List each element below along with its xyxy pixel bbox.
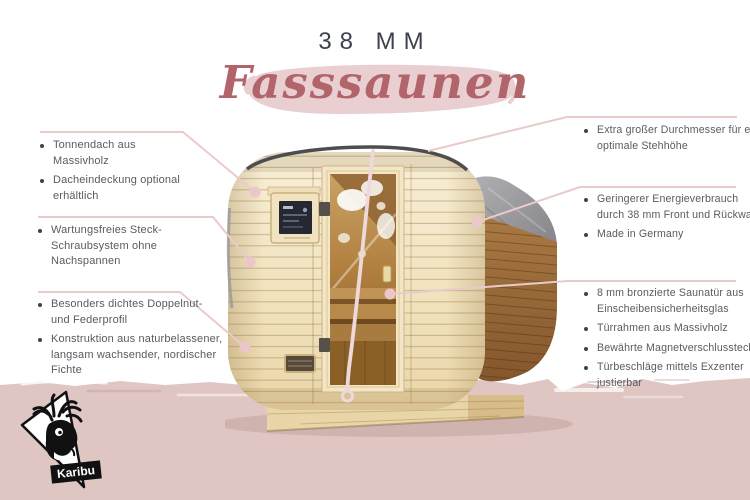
bullet-text: Tonnendach ausMassivholz xyxy=(53,138,136,169)
door-hinge-top xyxy=(319,202,330,216)
bullet-item: Bewährte Magnetverschlusstechnik xyxy=(584,341,750,357)
annotation-assembly: Wartungsfreies Steck-Schraubsystem ohneN… xyxy=(38,223,162,274)
bullet-text: Wartungsfreies Steck-Schraubsystem ohneN… xyxy=(51,223,162,270)
bullet-dot-icon xyxy=(584,366,588,370)
bullet-item: Besonders dichtes Doppelnut-und Federpro… xyxy=(38,297,222,328)
bullet-dot-icon xyxy=(40,144,44,148)
bullet-dot-icon xyxy=(584,292,588,296)
bullet-text: Geringerer Energieverbrauchdurch 38 mm F… xyxy=(597,192,750,223)
vent-grille xyxy=(285,355,315,372)
annotation-profile: Besonders dichtes Doppelnut-und Federpro… xyxy=(38,297,222,383)
bullet-text: Extra großer Durchmesser für eineoptimal… xyxy=(597,123,750,154)
bullet-item: Wartungsfreies Steck-Schraubsystem ohneN… xyxy=(38,223,162,270)
bullet-dot-icon xyxy=(584,327,588,331)
bullet-text: 8 mm bronzierte Saunatür ausEinscheibens… xyxy=(597,286,744,317)
bullet-dot-icon xyxy=(584,233,588,237)
annotation-roof: Tonnendach ausMassivholzDacheindeckung o… xyxy=(40,138,180,208)
bullet-item: Konstruktion aus naturbelassener,langsam… xyxy=(38,332,222,379)
bullet-dot-icon xyxy=(584,129,588,133)
sauna-door xyxy=(319,166,404,392)
bullet-dot-icon xyxy=(584,198,588,202)
door-hinge-bottom xyxy=(319,338,330,352)
bullet-item: Türrahmen aus Massivholz xyxy=(584,321,750,337)
annotation-door: 8 mm bronzierte Saunatür ausEinscheibens… xyxy=(584,286,750,395)
bullet-dot-icon xyxy=(38,303,42,307)
bullet-item: Geringerer Energieverbrauchdurch 38 mm F… xyxy=(584,192,750,223)
bullet-text: Türrahmen aus Massivholz xyxy=(597,321,728,337)
thickness-title: 38 MM xyxy=(0,28,750,56)
annotation-energy: Geringerer Energieverbrauchdurch 38 mm F… xyxy=(584,192,750,247)
bullet-text: Bewährte Magnetverschlusstechnik xyxy=(597,341,750,357)
bullet-item: Dacheindeckung optionalerhältlich xyxy=(40,173,180,204)
annotation-diameter: Extra großer Durchmesser für eineoptimal… xyxy=(584,123,750,158)
karibu-logo: Karibu xyxy=(18,388,118,496)
bullet-dot-icon xyxy=(584,347,588,351)
bullet-dot-icon xyxy=(40,179,44,183)
bullet-text: Besonders dichtes Doppelnut-und Federpro… xyxy=(51,297,203,328)
control-panel xyxy=(268,187,320,243)
bullet-item: Made in Germany xyxy=(584,227,750,243)
sauna-product-image xyxy=(225,145,617,440)
bullet-item: Türbeschläge mittels Exzenterjustierbar xyxy=(584,360,750,391)
product-title: Fasssaunen xyxy=(0,60,750,105)
bullet-text: Made in Germany xyxy=(597,227,683,243)
bullet-dot-icon xyxy=(38,229,42,233)
bullet-item: 8 mm bronzierte Saunatür ausEinscheibens… xyxy=(584,286,750,317)
bullet-item: Tonnendach ausMassivholz xyxy=(40,138,180,169)
bullet-text: Dacheindeckung optionalerhältlich xyxy=(53,173,180,204)
bullet-text: Türbeschläge mittels Exzenterjustierbar xyxy=(597,360,744,391)
bullet-dot-icon xyxy=(38,338,42,342)
bullet-text: Konstruktion aus naturbelassener,langsam… xyxy=(51,332,222,379)
infographic-page: { "header": { "thickness_label": "38 MM"… xyxy=(0,0,750,500)
bullet-item: Extra großer Durchmesser für eineoptimal… xyxy=(584,123,750,154)
